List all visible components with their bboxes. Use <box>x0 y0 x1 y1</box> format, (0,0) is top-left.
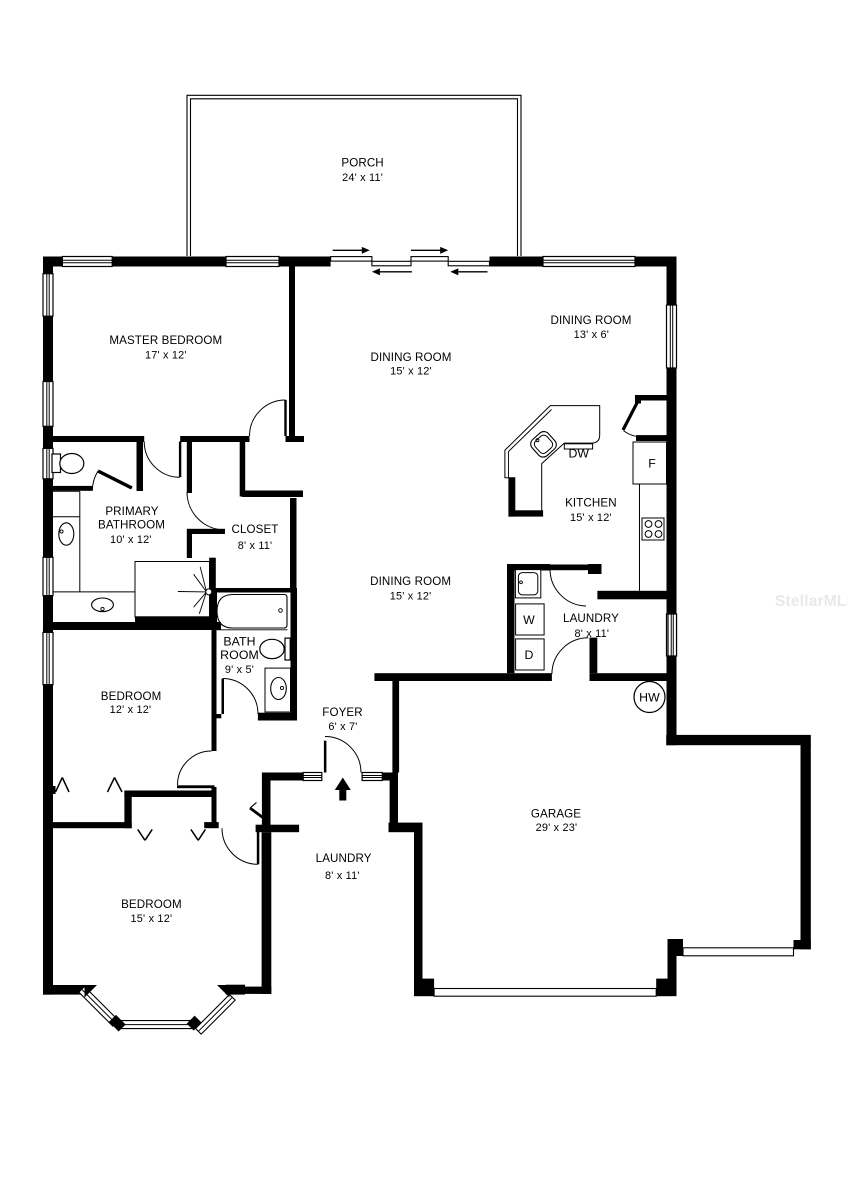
svg-text:8' x 11': 8' x 11' <box>325 870 360 882</box>
svg-text:9' x 5': 9' x 5' <box>225 664 254 676</box>
svg-text:DW: DW <box>568 446 589 460</box>
svg-text:DINING ROOM: DINING ROOM <box>370 575 451 588</box>
svg-text:W: W <box>523 613 535 627</box>
svg-text:15' x 12': 15' x 12' <box>131 913 173 925</box>
svg-text:LAUNDRY: LAUNDRY <box>563 612 619 625</box>
svg-text:15' x 12': 15' x 12' <box>390 591 432 603</box>
svg-text:15' x 12': 15' x 12' <box>570 512 612 524</box>
svg-text:6' x 7': 6' x 7' <box>328 721 357 733</box>
svg-text:HW: HW <box>639 690 660 704</box>
svg-text:15' x 12': 15' x 12' <box>390 366 432 378</box>
svg-text:24' x 11': 24' x 11' <box>342 172 383 184</box>
svg-text:LAUNDRY: LAUNDRY <box>316 852 372 865</box>
svg-text:MASTER BEDROOM: MASTER BEDROOM <box>109 334 222 347</box>
svg-text:PORCH: PORCH <box>341 157 383 170</box>
svg-text:8' x 11': 8' x 11' <box>574 628 609 640</box>
svg-text:12' x 12': 12' x 12' <box>110 704 152 716</box>
svg-text:PRIMARY: PRIMARY <box>105 505 158 518</box>
svg-text:29' x 23': 29' x 23' <box>536 822 578 834</box>
svg-text:10' x 12': 10' x 12' <box>110 534 152 546</box>
svg-text:BEDROOM: BEDROOM <box>101 690 162 703</box>
svg-text:FOYER: FOYER <box>322 706 362 719</box>
svg-text:ROOM: ROOM <box>220 648 259 662</box>
svg-text:DINING ROOM: DINING ROOM <box>551 314 632 327</box>
svg-text:13' x 6': 13' x 6' <box>574 329 609 341</box>
svg-text:D: D <box>525 648 534 662</box>
svg-text:17' x 12': 17' x 12' <box>145 349 187 361</box>
svg-text:DINING ROOM: DINING ROOM <box>371 351 452 364</box>
svg-text:BATH: BATH <box>223 635 255 649</box>
svg-text:StellarMLS: StellarMLS <box>775 593 848 610</box>
svg-text:F: F <box>648 457 656 471</box>
svg-text:KITCHEN: KITCHEN <box>565 497 617 510</box>
svg-text:BEDROOM: BEDROOM <box>121 898 182 911</box>
svg-text:BATHROOM: BATHROOM <box>98 518 165 531</box>
svg-text:CLOSET: CLOSET <box>232 523 279 536</box>
svg-text:8' x 11': 8' x 11' <box>238 540 273 552</box>
svg-text:GARAGE: GARAGE <box>531 808 581 821</box>
